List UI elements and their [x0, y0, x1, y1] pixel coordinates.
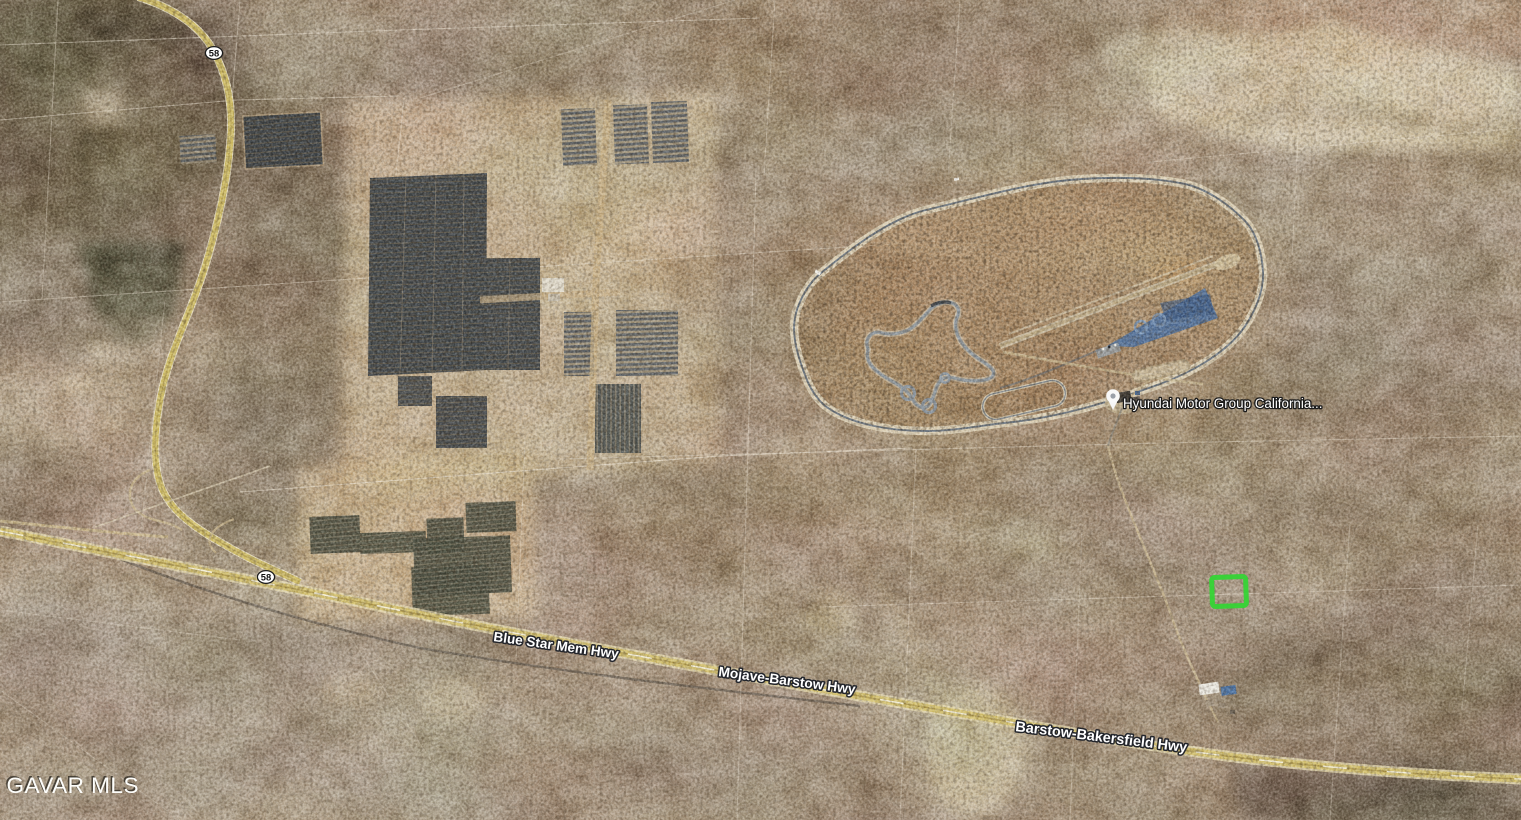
svg-text:58: 58 — [209, 48, 219, 59]
svg-text:GAVAR MLS: GAVAR MLS — [7, 773, 139, 798]
svg-text:Hyundai Motor Group California: Hyundai Motor Group California... — [1123, 396, 1322, 411]
svg-text:58: 58 — [261, 572, 271, 583]
